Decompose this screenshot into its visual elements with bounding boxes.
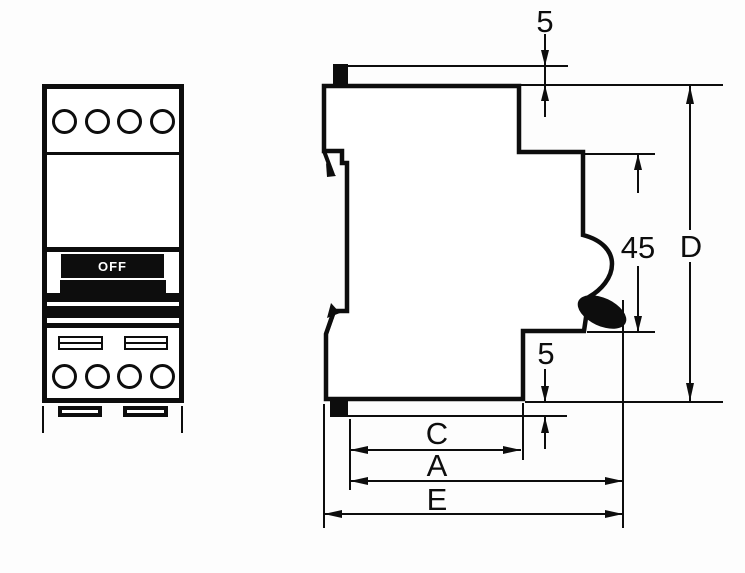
mounting-foot-right bbox=[123, 406, 168, 417]
top-slider-tab bbox=[333, 64, 348, 87]
dim-label-width-c: C bbox=[426, 416, 448, 451]
vent-slot-left bbox=[58, 336, 103, 350]
terminal-top-1 bbox=[52, 109, 77, 134]
dimension-top-tab: 5 bbox=[536, 4, 553, 117]
housing-edge-right bbox=[181, 406, 183, 433]
vent-slot-right bbox=[124, 336, 168, 350]
side-profile-outline bbox=[324, 86, 612, 399]
label-strip bbox=[47, 306, 179, 318]
toggle-switch[interactable]: OFF bbox=[59, 252, 166, 280]
terminal-top-2 bbox=[85, 109, 110, 134]
dim-label-bottom-tab: 5 bbox=[537, 336, 554, 371]
front-view-body: OFF bbox=[42, 84, 184, 403]
dim-label-handle-recess: 45 bbox=[621, 230, 655, 265]
toggle-guide-right bbox=[166, 252, 179, 293]
terminal-bottom-3 bbox=[117, 364, 142, 389]
dim-label-overall-height: D bbox=[680, 229, 702, 264]
dimension-handle-recess: 45 bbox=[621, 154, 655, 332]
dim-label-top-tab: 5 bbox=[536, 4, 553, 39]
terminal-bottom-1 bbox=[52, 364, 77, 389]
toggle-recess: OFF bbox=[47, 247, 179, 302]
dim-label-width-a: A bbox=[427, 448, 448, 483]
terminal-top-4 bbox=[150, 109, 175, 134]
lower-section-border bbox=[42, 323, 184, 328]
terminal-top-3 bbox=[117, 109, 142, 134]
mounting-foot-left bbox=[58, 406, 102, 417]
bottom-slider-tab bbox=[330, 400, 348, 417]
terminal-bottom-2 bbox=[85, 364, 110, 389]
dimension-bottom-tab: 5 bbox=[537, 336, 554, 449]
dimension-width-a: A bbox=[350, 448, 623, 485]
terminal-bottom-4 bbox=[150, 364, 175, 389]
terminal-cover-divider bbox=[47, 152, 179, 155]
toggle-switch-label: OFF bbox=[98, 259, 127, 274]
housing-edge-left bbox=[42, 406, 44, 433]
dimension-overall-height: D bbox=[680, 86, 702, 401]
dimension-width-e: E bbox=[324, 482, 623, 518]
dim-label-width-e: E bbox=[427, 482, 448, 517]
drawing-canvas: 5 45 D 5 C bbox=[0, 0, 745, 573]
